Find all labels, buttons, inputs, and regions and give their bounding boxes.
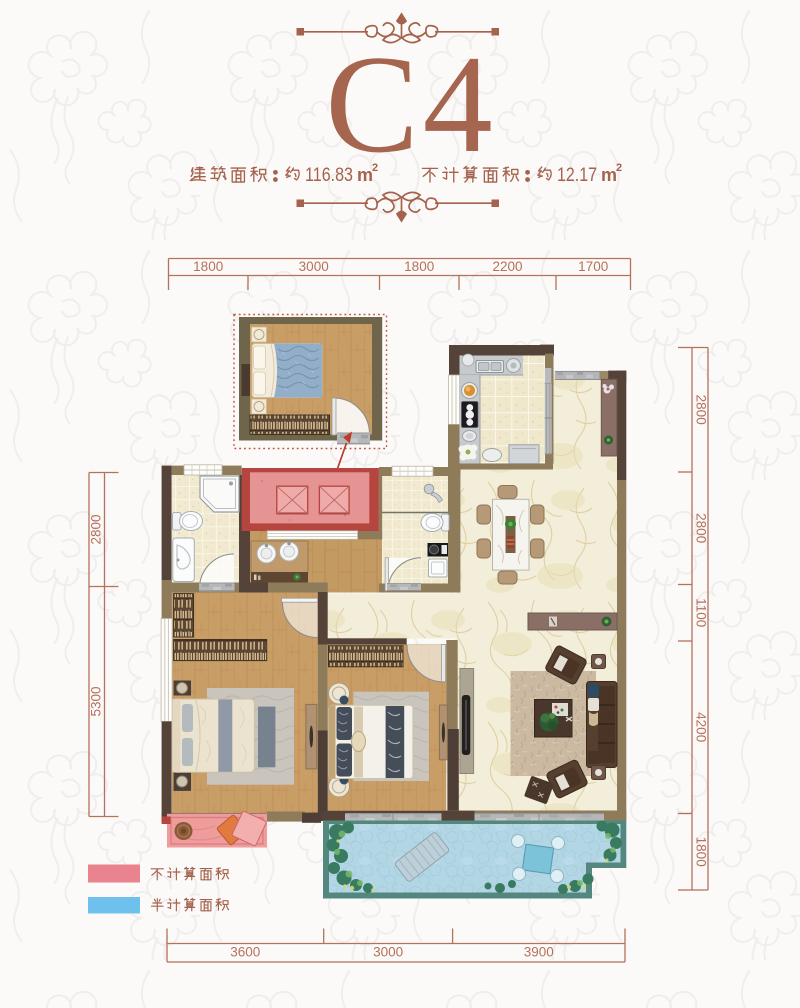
- svg-text:m: m: [357, 165, 373, 185]
- svg-text:2800: 2800: [88, 514, 103, 544]
- svg-text:2: 2: [372, 162, 378, 174]
- svg-text:2200: 2200: [492, 259, 522, 274]
- svg-text:2800: 2800: [693, 395, 708, 425]
- svg-text:5300: 5300: [88, 686, 103, 716]
- svg-text:3600: 3600: [230, 945, 260, 960]
- svg-text:m: m: [601, 165, 617, 185]
- svg-text:4200: 4200: [693, 712, 708, 742]
- svg-text:2: 2: [616, 162, 622, 174]
- svg-text:3900: 3900: [524, 945, 554, 960]
- svg-text:2800: 2800: [693, 513, 708, 543]
- svg-text:116.83: 116.83: [305, 164, 353, 186]
- svg-text:C4: C4: [325, 27, 496, 182]
- svg-text:1100: 1100: [693, 598, 708, 627]
- svg-text:12.17: 12.17: [557, 164, 597, 186]
- svg-text:1800: 1800: [193, 259, 223, 274]
- svg-text:1800: 1800: [404, 259, 434, 274]
- svg-text:1700: 1700: [578, 259, 608, 274]
- svg-text:1800: 1800: [693, 837, 708, 867]
- svg-text:3000: 3000: [373, 945, 403, 960]
- svg-text:3000: 3000: [299, 259, 329, 274]
